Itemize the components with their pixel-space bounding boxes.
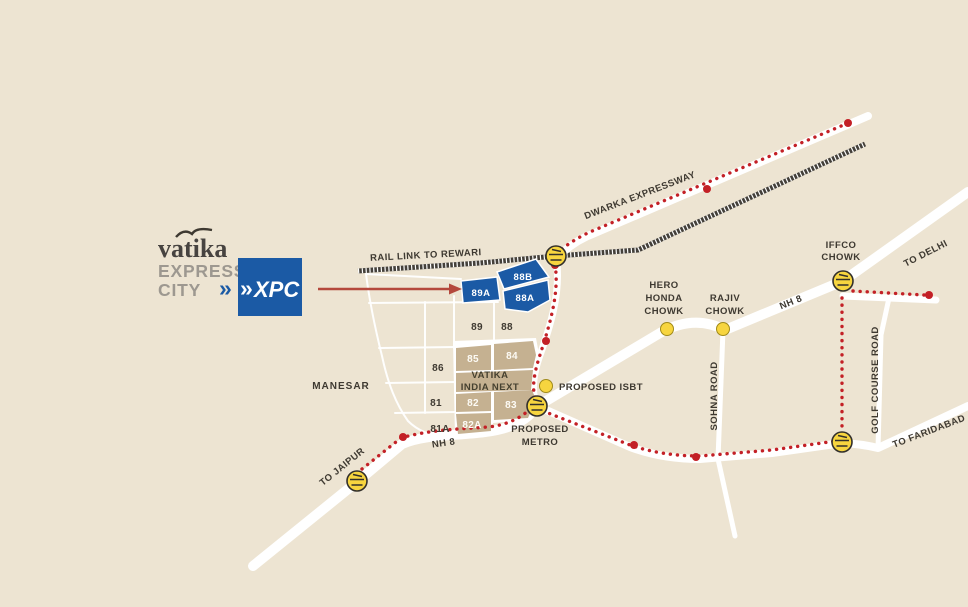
proposed-metro-station-icon xyxy=(527,396,547,416)
brand-sub-line1: EXPRESS xyxy=(158,261,246,281)
sector-88b-label: 88B xyxy=(514,272,533,283)
hero-honda-label-3: CHOWK xyxy=(644,306,683,317)
jaipur-road-station-icon xyxy=(347,471,367,491)
sohna-road-label: SOHNA ROAD xyxy=(709,361,720,430)
sector-82a-label: 82A xyxy=(462,420,481,431)
sector-81-label: 81 xyxy=(430,398,442,409)
iffco-chowk-station-icon xyxy=(833,271,853,291)
hero-honda-chowk-dot xyxy=(661,323,674,336)
proposed-isbt-dot xyxy=(540,380,553,393)
brand-name: vatika xyxy=(158,234,227,263)
location-map: RAIL LINK TO REWARI DWARKA EXPRESSWAY TO… xyxy=(0,0,968,607)
sector-81a-label: 81A xyxy=(430,424,449,435)
iffco-chowk-label-2: CHOWK xyxy=(821,252,860,263)
rail-station-icon xyxy=(546,246,566,266)
sector-82-label: 82 xyxy=(467,398,479,409)
rajiv-chowk-label-2: CHOWK xyxy=(705,306,744,317)
proposed-metro-label-2: METRO xyxy=(522,437,559,448)
brand-sub-line2: CITY xyxy=(158,280,201,300)
map-canvas: RAIL LINK TO REWARI DWARKA EXPRESSWAY TO… xyxy=(0,0,968,607)
sector-83-label: 83 xyxy=(505,400,517,411)
faridabad-junction-station-icon xyxy=(832,432,852,452)
hero-honda-label-1: HERO xyxy=(649,280,678,291)
road-iffco-east-stub xyxy=(843,296,936,300)
vatika-india-next-label-2: INDIA NEXT xyxy=(461,382,519,393)
badge-chevrons-outer: » xyxy=(219,275,232,301)
sector-89-label: 89 xyxy=(471,322,483,333)
proposed-metro-label-1: PROPOSED xyxy=(511,424,568,435)
sector-88-label: 88 xyxy=(501,322,513,333)
sector-85-label: 85 xyxy=(467,354,479,365)
sector-88a-label: 88A xyxy=(516,293,535,304)
iffco-chowk-label-1: IFFCO xyxy=(826,240,857,251)
map-background xyxy=(0,0,968,607)
badge-text: XPC xyxy=(252,277,300,302)
rajiv-chowk-label-1: RAJIV xyxy=(710,293,740,304)
hero-honda-label-2: HONDA xyxy=(645,293,682,304)
vatika-india-next-label-1: VATIKA xyxy=(472,370,509,381)
sector-86-label: 86 xyxy=(432,363,444,374)
sector-89a-label: 89A xyxy=(472,288,491,299)
sector-84-label: 84 xyxy=(506,351,518,362)
manesar-label: MANESAR xyxy=(312,381,370,392)
rajiv-chowk-dot xyxy=(717,323,730,336)
badge-chevrons-inner: » xyxy=(240,275,253,301)
golf-course-road-label: GOLF COURSE ROAD xyxy=(870,326,881,433)
proposed-isbt-label: PROPOSED ISBT xyxy=(559,382,643,393)
